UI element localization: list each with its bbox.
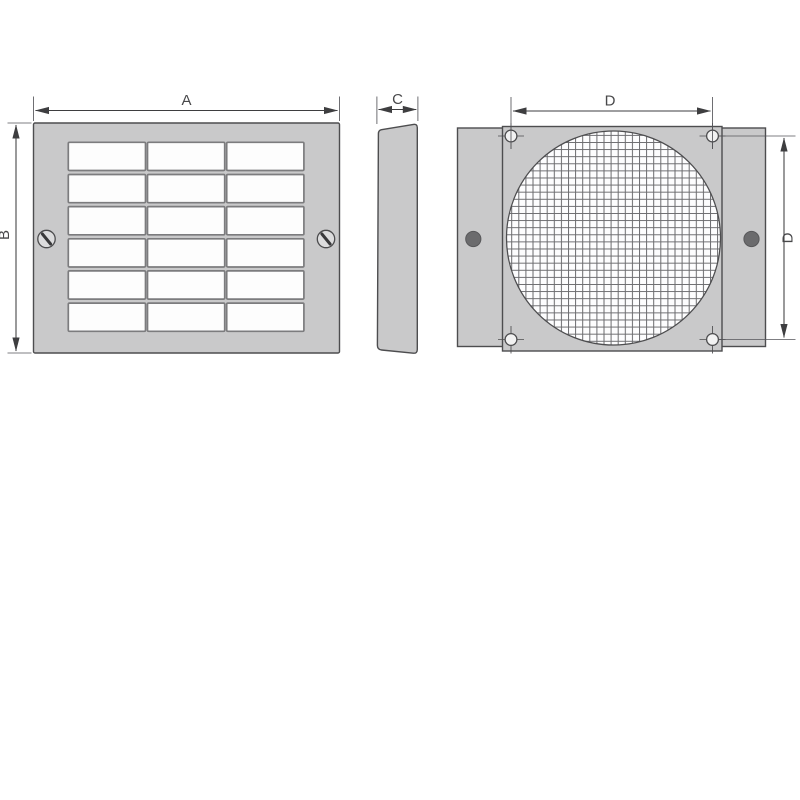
wire-mesh-opening xyxy=(507,131,721,345)
louver-slot xyxy=(227,303,304,331)
louver-slot xyxy=(148,303,225,331)
louver-slot xyxy=(68,142,145,170)
louver-slot xyxy=(227,271,304,299)
louver-slot xyxy=(227,142,304,170)
drawing-canvas: A B C xyxy=(0,0,800,800)
dim-a-label: A xyxy=(181,92,191,109)
louver-slot xyxy=(227,239,304,267)
screw-hole xyxy=(505,334,517,346)
dim-d-height-label: D xyxy=(780,232,797,243)
louver-slot xyxy=(68,303,145,331)
louver-slot xyxy=(148,175,225,203)
screw-right xyxy=(317,230,334,247)
louver-slot xyxy=(148,207,225,235)
louver-slot xyxy=(148,142,225,170)
side-profile xyxy=(377,124,417,353)
dimension-a: A xyxy=(34,92,340,121)
side-view: C xyxy=(377,91,418,353)
louver-slot xyxy=(227,175,304,203)
screw-hole xyxy=(707,334,719,346)
louver-slot xyxy=(68,207,145,235)
dim-d-width-label: D xyxy=(605,93,616,110)
fastener-right xyxy=(744,231,759,246)
dim-b-label: B xyxy=(0,230,13,240)
dimension-b: B xyxy=(0,123,32,353)
technical-drawing: A B C xyxy=(0,0,800,800)
back-view: D D xyxy=(458,93,797,354)
dim-c-label: C xyxy=(392,91,403,108)
louver-slot xyxy=(227,207,304,235)
louver-slot xyxy=(68,239,145,267)
louver-slot xyxy=(68,271,145,299)
louver-slot xyxy=(148,271,225,299)
fastener-left xyxy=(466,231,481,246)
front-view: A B xyxy=(0,92,340,353)
dimension-c: C xyxy=(377,91,418,124)
louver-slot xyxy=(148,239,225,267)
screw-left xyxy=(38,230,55,247)
louver-slot xyxy=(68,175,145,203)
